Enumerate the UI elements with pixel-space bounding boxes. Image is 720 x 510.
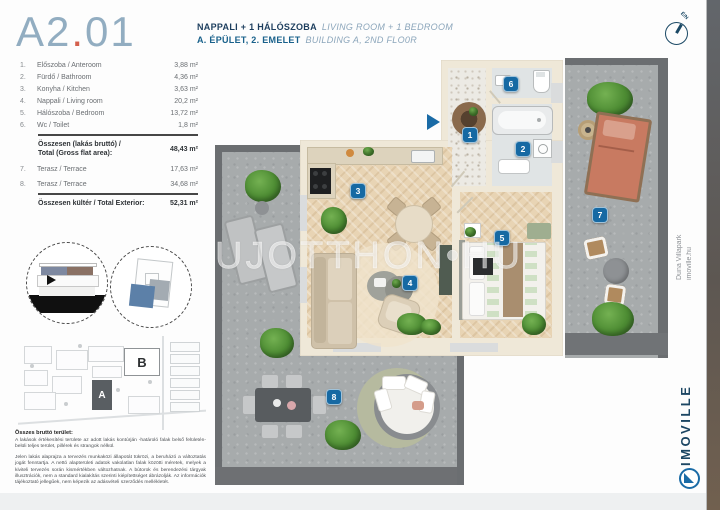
site-parking: [170, 342, 200, 352]
daybed-pillow: [412, 401, 424, 410]
site-lot: [52, 376, 82, 394]
lounger-seam: [598, 145, 634, 153]
row-name: Nappali / Living room: [37, 98, 152, 105]
unit-title: A2.01: [16, 8, 136, 56]
plant-bush: [592, 302, 634, 336]
site-tree: [148, 380, 152, 384]
table-row: 1.Előszoba / Anteroom3,88 m²: [20, 62, 198, 69]
site-parking: [170, 354, 200, 364]
plant-bush: [421, 319, 441, 335]
brand-wordmark: IMOVILLE: [678, 374, 693, 466]
unit-title-prefix: A2: [16, 8, 71, 55]
row-value: 4,36 m²: [152, 74, 198, 81]
terrace-chair: [312, 395, 327, 415]
header-line1: NAPPALI + 1 HÁLÓSZOBALIVING ROOM + 1 BED…: [197, 20, 453, 33]
row-name: Terasz / Terrace: [37, 181, 152, 188]
plant-pot: [363, 147, 374, 156]
header-line2-en: BUILDING A, 2ND FLO0R: [306, 35, 418, 45]
site-parking: [170, 366, 200, 376]
window: [300, 195, 307, 231]
legal-paragraph-2: Jelen lakás alaprajza a tervezés munkakö…: [15, 455, 206, 487]
building-section-key: [26, 242, 108, 324]
site-lot: [88, 346, 124, 362]
total-flat-label-line2: Total (Gross flat area):: [38, 150, 112, 157]
table-row: 8.Terasz / Terrace34,68 m²: [20, 181, 198, 188]
room-badge-terrace-8: 8: [326, 389, 342, 405]
site-road: [162, 336, 164, 430]
row-name: Előszoba / Anteroom: [37, 62, 152, 69]
washing-machine: [533, 139, 552, 158]
table-divider: [38, 134, 198, 136]
page-edge: [706, 0, 720, 510]
compass-north-label: É/N: [679, 11, 689, 21]
room-badge-anteroom: 1: [462, 127, 478, 143]
table-tray: [374, 278, 386, 287]
compass-icon: É/N: [663, 13, 697, 47]
site-lot: [128, 396, 160, 414]
floor-key-plan: [110, 246, 192, 328]
watermark: UJOTTHON•HU: [215, 235, 668, 278]
terrace-edge: [565, 333, 668, 355]
row-num: 7.: [20, 166, 37, 173]
row-name: Konyha / Kitchen: [37, 86, 152, 93]
terrace-chair: [285, 424, 303, 439]
total-flat-label: Összesen (lakás bruttó) /Total (Gross fl…: [38, 140, 152, 158]
plant-pot: [392, 279, 401, 288]
area-table: 1.Előszoba / Anteroom3,88 m² 2.Fürdő / B…: [20, 58, 198, 218]
total-flat-row: Összesen (lakás bruttó) /Total (Gross fl…: [20, 140, 198, 158]
row-value: 20,2 m²: [152, 98, 198, 105]
row-num: 4.: [20, 98, 37, 105]
terrace-chair: [261, 424, 279, 439]
sofa-cushion: [328, 302, 352, 344]
terrace-edge: [658, 58, 668, 358]
row-num: 2.: [20, 74, 37, 81]
lounger-pillow: [602, 119, 636, 140]
total-flat-label-line1: Összesen (lakás bruttó) /: [38, 141, 121, 148]
site-tree: [78, 344, 82, 348]
plant-bush: [325, 420, 361, 450]
row-value: 3,88 m²: [152, 62, 198, 69]
total-exterior-label: Összesen kültér / Total Exterior:: [38, 200, 152, 207]
row-value: 3,63 m²: [152, 86, 198, 93]
total-flat-value: 48,43 m²: [152, 146, 198, 153]
plant-bush: [260, 328, 294, 358]
room-badge-terrace-7: 7: [592, 207, 608, 223]
header-line2: A. ÉPÜLET, 2. EMELETBUILDING A, 2ND FLO0…: [197, 33, 453, 46]
row-value: 34,68 m²: [152, 181, 198, 188]
table-row: 7.Terasz / Terrace17,63 m²: [20, 166, 198, 173]
bathtub-drain: [537, 118, 541, 122]
project-url-vertical: imoville.hu: [686, 206, 693, 280]
table-row: 6.Wc / Toilet1,8 m²: [20, 122, 198, 129]
site-lot: [24, 346, 52, 364]
bathroom-sink: [498, 159, 530, 174]
plant-bush: [587, 82, 633, 116]
row-name: Fürdő / Bathroom: [37, 74, 152, 81]
site-lot: [24, 370, 48, 386]
unit-title-suffix: 01: [85, 8, 136, 55]
toilet-fixture: [533, 70, 550, 93]
site-building-b: B: [124, 348, 160, 376]
site-pool: [92, 366, 122, 378]
legal-heading: Összes bruttó terület:: [15, 430, 206, 436]
plant-bush: [245, 170, 281, 202]
project-name-vertical: Duna Villapark: [676, 206, 683, 280]
floor-plan: 1 2 3 4 5 6 7 8 UJOTTHON•HU: [215, 55, 668, 487]
table-decor: [273, 399, 281, 407]
row-name: Wc / Toilet: [37, 122, 152, 129]
site-parking: [170, 378, 200, 388]
logo-sail: [684, 473, 694, 483]
round-daybed: [374, 374, 440, 440]
room-badge-kitchen: 3: [350, 183, 366, 199]
site-building-a: A: [92, 380, 112, 410]
plant-pot: [321, 207, 347, 234]
page-bottom-band: [0, 493, 706, 510]
side-table: [255, 201, 269, 215]
bed-pillow: [469, 282, 485, 316]
table-row: 2.Fürdő / Bathroom4,36 m²: [20, 74, 198, 81]
building-b-label: B: [137, 355, 146, 370]
room-badge-toilet: 6: [503, 76, 519, 92]
imoville-logo-icon: [679, 468, 700, 489]
table-row: 5.Hálószoba / Bedroom13,72 m²: [20, 110, 198, 117]
bathtub: [492, 106, 553, 135]
glass-door: [551, 83, 563, 103]
room-badge-bathroom: 2: [515, 141, 531, 157]
row-value: 1,8 m²: [152, 122, 198, 129]
brochure-page: A2.01 NAPPALI + 1 HÁLÓSZOBALIVING ROOM +…: [0, 0, 720, 510]
plant-bush: [522, 313, 546, 335]
site-tree: [116, 388, 120, 392]
terrace-chair: [261, 374, 279, 389]
table-divider: [38, 193, 198, 195]
table-row: 3.Konyha / Kitchen3,63 m²: [20, 86, 198, 93]
apartment-header: NAPPALI + 1 HÁLÓSZOBALIVING ROOM + 1 BED…: [197, 20, 453, 46]
terrace-edge: [457, 350, 464, 485]
total-exterior-row: Összesen kültér / Total Exterior: 52,31 …: [20, 200, 198, 207]
total-exterior-value: 52,31 m²: [152, 200, 198, 207]
terrace-edge: [215, 145, 222, 485]
row-name: Hálószoba / Bedroom: [37, 110, 152, 117]
terrace-edge: [565, 58, 668, 65]
header-line1-hu: NAPPALI + 1 HÁLÓSZOBA: [197, 22, 317, 32]
entrance-arrow-icon: [427, 114, 440, 130]
terrace-chair: [285, 374, 303, 389]
header-line1-en: LIVING ROOM + 1 BEDROOM: [322, 22, 453, 32]
ground-mass: [26, 295, 108, 313]
site-parking: [170, 390, 200, 400]
unit-title-dot: .: [71, 8, 85, 55]
kitchen-sink: [411, 150, 435, 163]
row-num: 3.: [20, 86, 37, 93]
site-parking: [170, 402, 200, 412]
cooking-pot: [346, 149, 354, 157]
header-line2-hu: A. ÉPÜLET, 2. EMELET: [197, 35, 301, 45]
site-lot: [56, 350, 88, 370]
glass-door: [551, 141, 563, 163]
row-num: 5.: [20, 110, 37, 117]
terrace-edge: [215, 467, 464, 485]
row-num: 6.: [20, 122, 37, 129]
site-tree: [30, 364, 34, 368]
key-plan-highlighted-unit: [129, 284, 155, 308]
row-value: 13,72 m²: [152, 110, 198, 117]
site-lot: [24, 392, 56, 410]
row-value: 17,63 m²: [152, 166, 198, 173]
plant-pot: [469, 107, 478, 116]
site-plan: B A: [18, 336, 206, 430]
table-row: 4.Nappali / Living room20,2 m²: [20, 98, 198, 105]
row-num: 1.: [20, 62, 37, 69]
legal-disclaimer: Összes bruttó terület: A lakások értékes…: [15, 430, 206, 491]
cooktop: [310, 168, 331, 194]
row-name: Terasz / Terrace: [37, 166, 152, 173]
legal-paragraph-1: A lakások értékesítési területe az adott…: [15, 438, 206, 451]
terrace-edge: [215, 145, 303, 152]
floor-level-arrow-icon: [47, 275, 56, 285]
terrace-dining-table: [255, 388, 311, 422]
row-num: 8.: [20, 181, 37, 188]
site-tree: [64, 402, 68, 406]
table-decor: [287, 401, 296, 410]
building-a-label: A: [98, 390, 105, 401]
section-roof-slab: [39, 263, 97, 267]
glass-door: [450, 343, 498, 352]
